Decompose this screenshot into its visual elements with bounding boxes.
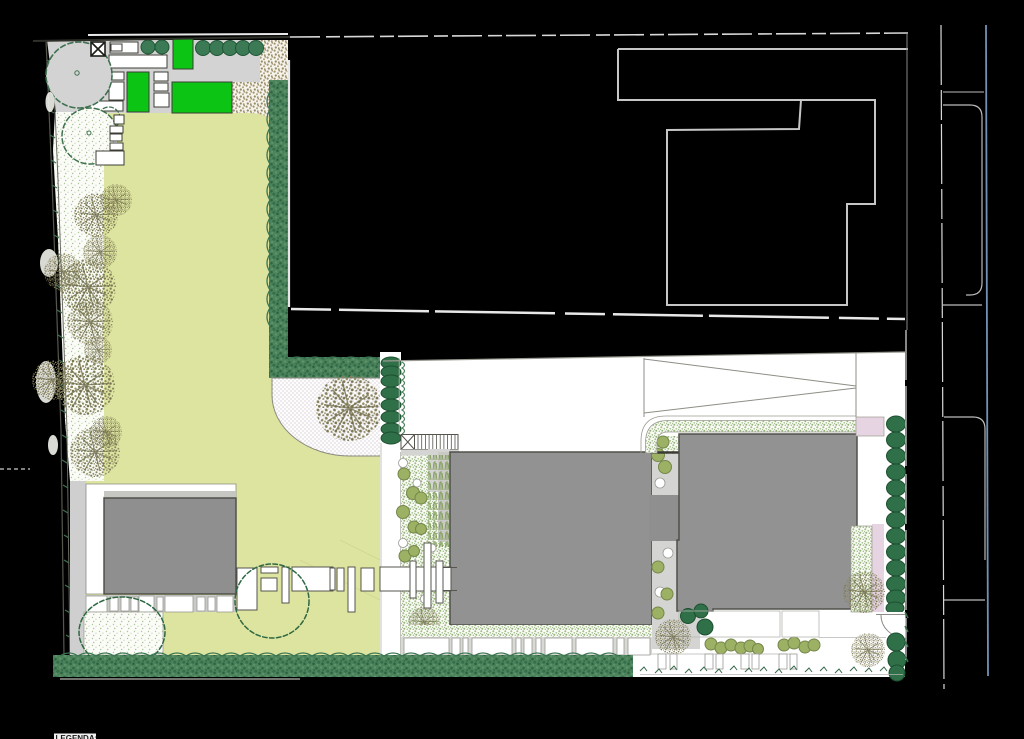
svg-text:LEGENDA:: LEGENDA: <box>56 734 98 739</box>
